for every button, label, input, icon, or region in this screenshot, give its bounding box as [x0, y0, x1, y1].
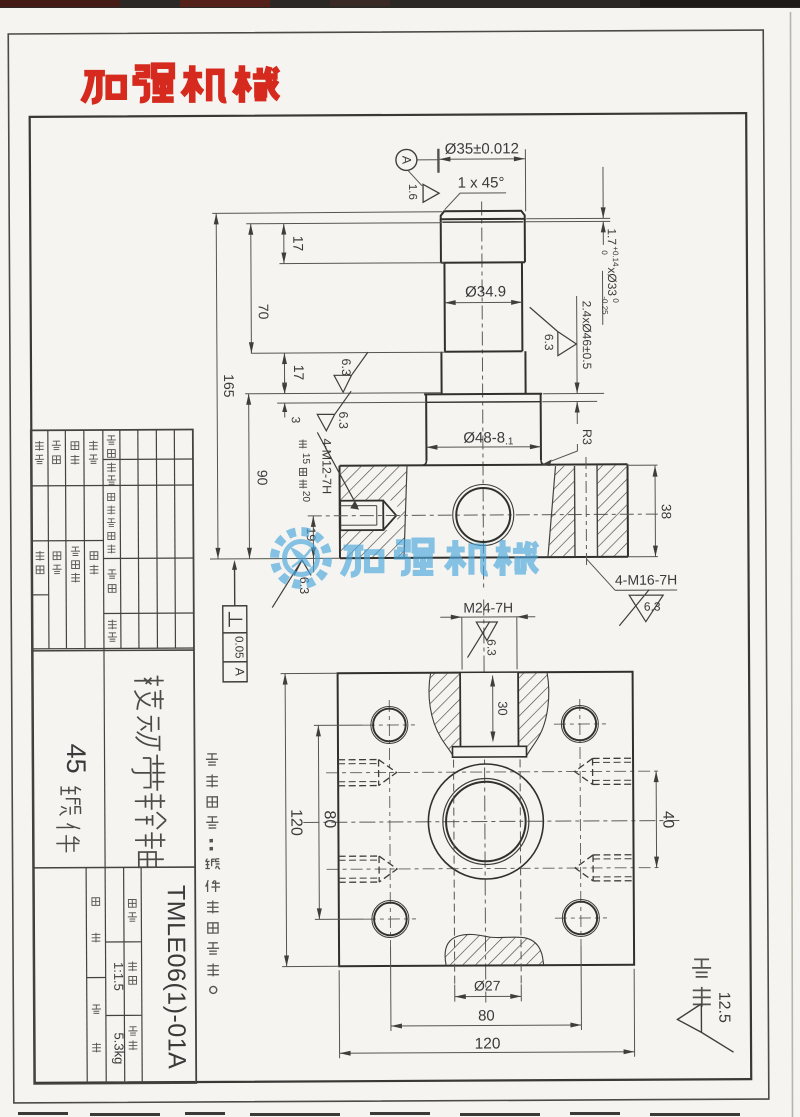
svg-text:6.3: 6.3 [484, 639, 498, 656]
svg-text:80: 80 [478, 1007, 495, 1024]
svg-text:6.3: 6.3 [542, 334, 556, 351]
svg-text:17: 17 [290, 236, 306, 252]
svg-text:Ø48-8.1: Ø48-8.1 [463, 429, 514, 447]
svg-text:0: 0 [611, 298, 620, 303]
svg-text:Ø35±0.012: Ø35±0.012 [445, 140, 519, 157]
svg-text:40: 40 [659, 811, 676, 829]
svg-text:4-M16-7H: 4-M16-7H [615, 571, 677, 587]
svg-text:90: 90 [255, 470, 271, 486]
svg-text:45: 45 [61, 744, 91, 774]
svg-text:20: 20 [300, 491, 311, 503]
svg-text:1.6: 1.6 [406, 184, 418, 200]
svg-text:xØ33: xØ33 [605, 267, 619, 296]
svg-text:TMLE06(1)-01A: TMLE06(1)-01A [162, 885, 191, 1070]
svg-text:A: A [399, 156, 413, 165]
svg-text:A: A [233, 668, 247, 677]
svg-text:0: 0 [600, 250, 609, 255]
svg-text:80: 80 [321, 810, 338, 828]
svg-text:Ø34.9: Ø34.9 [465, 283, 506, 300]
svg-text:-0.25: -0.25 [600, 296, 609, 315]
svg-text:15: 15 [300, 453, 311, 465]
svg-text:70: 70 [256, 304, 272, 320]
svg-text:4-M12-7H: 4-M12-7H [319, 439, 333, 495]
svg-text:6.3: 6.3 [336, 412, 350, 429]
svg-text:0.05: 0.05 [232, 636, 244, 658]
svg-text:M24-7H: M24-7H [463, 599, 513, 615]
svg-text:+0.14: +0.14 [611, 246, 620, 267]
svg-text:17: 17 [291, 365, 307, 381]
svg-text:5.3kg: 5.3kg [111, 1032, 126, 1064]
svg-text:6.3: 6.3 [644, 600, 661, 614]
svg-text:38: 38 [659, 504, 674, 519]
svg-text:6.3: 6.3 [339, 358, 353, 375]
svg-text:165: 165 [221, 374, 237, 398]
svg-text:3: 3 [289, 417, 303, 424]
svg-text:30: 30 [495, 701, 510, 716]
svg-text:1.7: 1.7 [605, 228, 619, 245]
svg-text:12.5: 12.5 [715, 992, 732, 1023]
svg-text:1 x 45°: 1 x 45° [458, 174, 505, 191]
svg-text:120: 120 [475, 1035, 501, 1052]
svg-text:Ø27: Ø27 [474, 977, 501, 993]
svg-text:R3: R3 [580, 429, 594, 445]
svg-text:2.4xØ46±0.5: 2.4xØ46±0.5 [580, 301, 594, 370]
svg-text:1:1.5: 1:1.5 [111, 962, 126, 991]
svg-text:120: 120 [287, 809, 304, 836]
